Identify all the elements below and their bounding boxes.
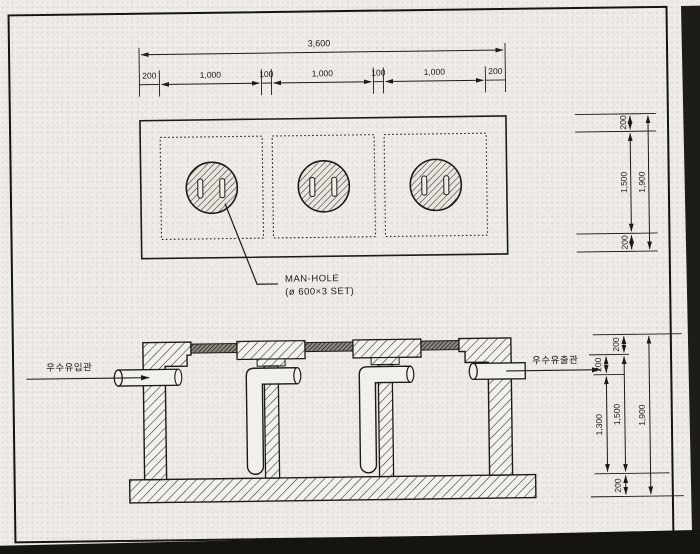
dim-line-plan-right-overall bbox=[648, 116, 650, 249]
manhole-1-slot-left bbox=[198, 179, 203, 198]
section-view: 우수유입관 우수유출관 bbox=[26, 337, 602, 504]
manhole-2-slot-left bbox=[310, 177, 315, 196]
manhole-3-slot-left bbox=[422, 176, 427, 195]
scanned-drawing-page: 3,600 200 1,000 100 1,000 100 1,000 200 bbox=[0, 0, 700, 554]
dim-section-topslab-200: 200 bbox=[611, 337, 621, 352]
dim-top-seg-2: 100 bbox=[259, 69, 274, 79]
dim-line-top-seg-5 bbox=[385, 80, 483, 81]
dim-top-overall: 3,600 bbox=[308, 38, 331, 48]
manhole-3-slot-right bbox=[444, 176, 449, 195]
section-top-block-1 bbox=[237, 341, 305, 360]
section-left-wall bbox=[143, 342, 193, 480]
manhole-leader-line bbox=[225, 203, 278, 285]
technical-drawing: 3,600 200 1,000 100 1,000 100 1,000 200 bbox=[0, 0, 700, 554]
dim-plan-right-seg-2: 200 bbox=[619, 235, 629, 250]
plan-view: MAN-HOLE (ø 600×3 SET) bbox=[140, 116, 508, 300]
dim-top-seg-6: 200 bbox=[488, 66, 503, 76]
dim-top-seg-1: 1,000 bbox=[200, 70, 222, 80]
dim-plan-right-overall: 1,900 bbox=[637, 171, 647, 193]
section-right-dimension-chain: 200 200 1,300 1,500 1,900 200 bbox=[589, 334, 684, 497]
drawing-sheet: 3,600 200 1,000 100 1,000 100 1,000 200 bbox=[0, 0, 700, 554]
dim-plan-right-seg-0: 200 bbox=[618, 115, 628, 130]
section-cover-2 bbox=[304, 342, 354, 352]
elbow-pipe-2-outlet-end bbox=[407, 366, 414, 382]
section-right-wall bbox=[459, 338, 513, 476]
manhole-2-slot-right bbox=[332, 177, 337, 196]
section-cover-3 bbox=[420, 341, 460, 351]
manhole-label-line1: MAN-HOLE bbox=[285, 273, 339, 285]
dim-section-1500: 1,500 bbox=[612, 404, 622, 426]
outlet-label: 우수유출관 bbox=[532, 355, 578, 367]
section-seat-1 bbox=[257, 359, 285, 366]
section-seat-2 bbox=[371, 357, 399, 364]
plan-top-dimension-chain: 3,600 200 1,000 100 1,000 100 1,000 200 bbox=[139, 36, 506, 97]
manhole-3 bbox=[410, 159, 462, 211]
dim-line-top-seg-1 bbox=[161, 83, 259, 84]
section-cover-1 bbox=[190, 343, 238, 353]
dim-line-section-1500 bbox=[624, 356, 626, 471]
dim-line-top-seg-3 bbox=[273, 82, 371, 83]
dim-top-seg-0: 200 bbox=[142, 71, 157, 81]
dim-line-section-overall bbox=[649, 336, 651, 494]
elbow-pipe-1-outlet-end bbox=[294, 368, 301, 384]
dim-line-top-overall bbox=[141, 50, 503, 55]
dim-top-seg-3: 1,000 bbox=[312, 68, 334, 78]
inlet-label: 우수유입관 bbox=[46, 361, 92, 374]
dim-top-seg-4: 100 bbox=[371, 68, 386, 78]
dim-section-1300: 1,300 bbox=[594, 414, 604, 436]
dim-line-plan-right-1500 bbox=[630, 133, 631, 231]
manhole-2 bbox=[298, 161, 350, 213]
dim-top-seg-5: 1,000 bbox=[424, 67, 446, 77]
plan-right-dimension-chain: 200 1,500 200 1,900 bbox=[575, 113, 658, 252]
dim-section-floor-200: 200 bbox=[613, 478, 623, 493]
manhole-1-slot-right bbox=[220, 179, 225, 198]
manhole-1 bbox=[186, 162, 238, 214]
dim-plan-right-seg-1: 1,500 bbox=[619, 171, 629, 193]
dim-section-overall: 1,900 bbox=[637, 404, 647, 426]
dim-line-section-1300 bbox=[606, 377, 607, 472]
manhole-label-line2: (ø 600×3 SET) bbox=[285, 286, 354, 298]
section-floor-slab bbox=[130, 475, 536, 503]
dim-section-pipe-200: 200 bbox=[593, 357, 603, 372]
section-top-block-2 bbox=[353, 339, 421, 358]
